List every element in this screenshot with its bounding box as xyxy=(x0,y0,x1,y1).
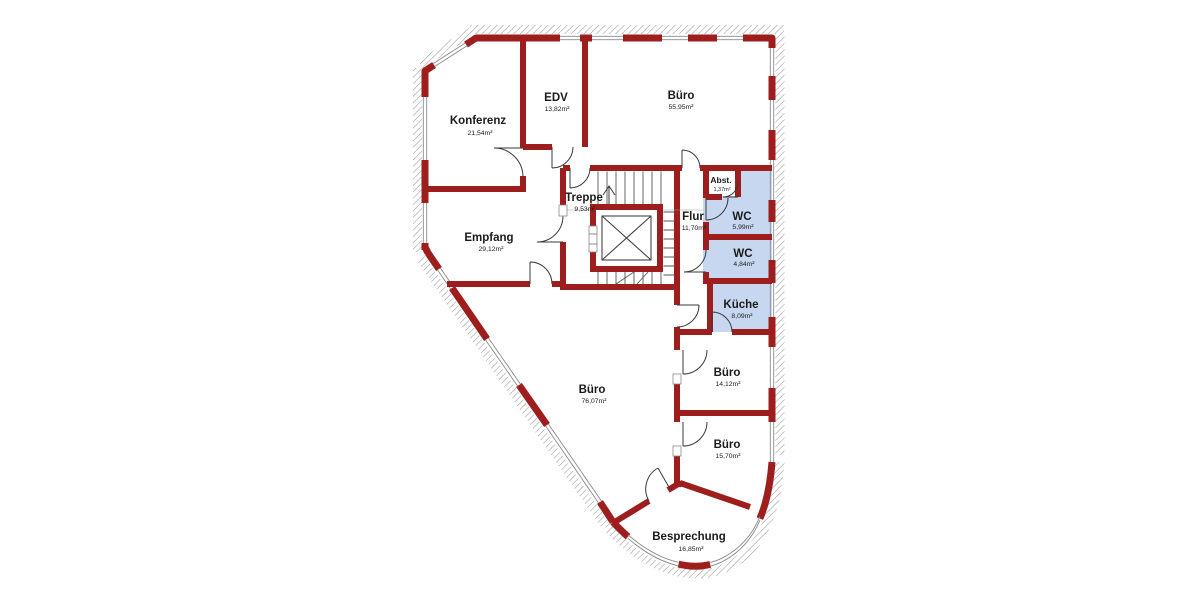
door-empfang-buero xyxy=(530,262,552,284)
room-label-konferenz: Konferenz xyxy=(450,115,506,127)
room-area-abstellraum: 1,37m² xyxy=(713,187,730,193)
door-besprechung xyxy=(646,468,670,501)
room-label-treppe: Treppe xyxy=(565,192,603,204)
room-label-wc-1: WC xyxy=(732,211,751,223)
room-area-buero-west: 76,07m² xyxy=(582,398,608,405)
room-area-flur: 11,70m² xyxy=(682,225,707,232)
elevator xyxy=(589,207,660,269)
room-area-buero-ost-2: 15,70m² xyxy=(716,453,742,460)
room-area-wc-2: 4,84m² xyxy=(733,261,755,268)
door-buero-ost-1 xyxy=(683,350,707,374)
room-label-flur: Flur xyxy=(682,211,704,223)
door-treppe-empfang xyxy=(537,216,563,242)
room-label-edv: EDV xyxy=(544,92,568,104)
room-area-empfang: 29,12m² xyxy=(479,246,505,253)
room-label-empfang: Empfang xyxy=(464,232,513,244)
room-label-besprechung: Besprechung xyxy=(652,531,726,543)
room-area-wc-1: 5,99m² xyxy=(732,224,754,231)
room-area-kueche: 8,09m² xyxy=(731,313,753,320)
room-area-konferenz: 21,54m² xyxy=(468,130,494,137)
room-area-buero-ost-1: 14,12m² xyxy=(716,381,742,388)
room-label-wc-2: WC xyxy=(733,248,752,260)
room-area-edv: 13,82m² xyxy=(545,106,571,113)
room-label-abstellraum: Abst. xyxy=(710,175,731,185)
room-label-buero-ost-1: Büro xyxy=(714,367,741,379)
room-area-buero-nord: 55,95m² xyxy=(669,104,695,111)
room-label-buero-nord: Büro xyxy=(668,90,695,102)
room-label-buero-ost-2: Büro xyxy=(714,439,741,451)
door-flur-buero-west xyxy=(677,305,699,327)
floor-plan-page: Konferenz 21,54m² EDV 13,82m² Büro 55,95… xyxy=(0,0,1200,600)
room-label-kueche: Küche xyxy=(723,299,758,311)
room-area-besprechung: 16,85m² xyxy=(679,546,705,553)
room-label-buero-west: Büro xyxy=(579,384,606,396)
door-edv xyxy=(552,147,573,168)
floor-plan: Konferenz 21,54m² EDV 13,82m² Büro 55,95… xyxy=(0,0,1200,600)
door-konferenz xyxy=(494,148,523,177)
door-wc-2 xyxy=(684,250,706,272)
room-area-treppe: 9,53m² xyxy=(574,206,596,213)
door-buero-nord-flur xyxy=(682,150,700,168)
door-treppe-nord xyxy=(570,168,590,188)
room-fill-wc-2 xyxy=(703,238,772,282)
door-buero-ost-2 xyxy=(683,422,707,446)
